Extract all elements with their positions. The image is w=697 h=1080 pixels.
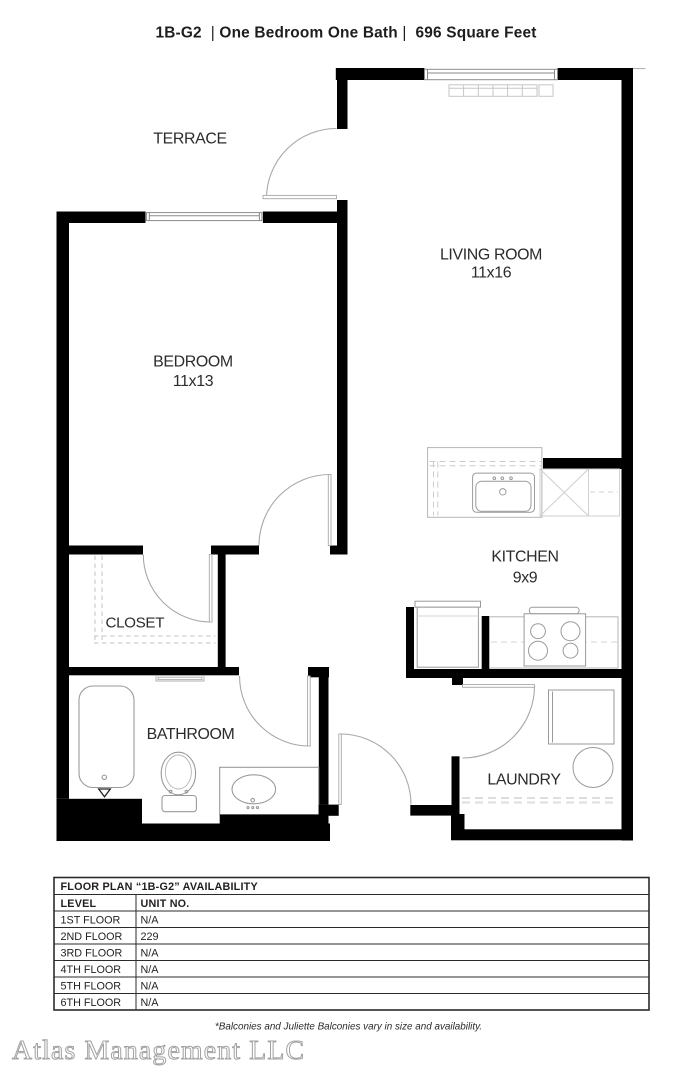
svg-text:2ND FLOOR: 2ND FLOOR [61,931,123,943]
svg-text:5TH FLOOR: 5TH FLOOR [61,980,122,992]
svg-text:KITCHEN: KITCHEN [491,549,558,566]
svg-text:LIVING ROOM: LIVING ROOM [440,247,542,264]
svg-text:CLOSET: CLOSET [105,615,164,632]
svg-text:6TH FLOOR: 6TH FLOOR [61,997,122,1009]
svg-text:FLOOR PLAN “1B-G2” AVAILABILIT: FLOOR PLAN “1B-G2” AVAILABILITY [61,881,259,893]
svg-text:LAUNDRY: LAUNDRY [487,772,561,789]
svg-text:N/A: N/A [141,980,160,992]
svg-text:229: 229 [141,931,159,943]
svg-text:N/A: N/A [141,947,160,959]
svg-text:3RD FLOOR: 3RD FLOOR [61,947,123,959]
svg-text:9x9: 9x9 [513,570,538,587]
svg-text:UNIT NO.: UNIT NO. [141,898,190,910]
svg-text:*Balconies and Juliette Balcon: *Balconies and Juliette Balconies vary i… [215,1022,482,1033]
svg-text:1ST FLOOR: 1ST FLOOR [61,914,121,926]
svg-text:N/A: N/A [141,914,160,926]
svg-text:11x13: 11x13 [173,373,214,390]
svg-text:LEVEL: LEVEL [61,898,97,910]
svg-text:TERRACE: TERRACE [153,131,226,148]
svg-text:Atlas Management LLC: Atlas Management LLC [12,1035,305,1066]
svg-text:4TH FLOOR: 4TH FLOOR [61,964,122,976]
svg-text:1B-G2 | One Bedroom One Bath: 1B-G2 | One Bedroom One Bath | 696 Squar… [155,25,536,42]
svg-text:11x16: 11x16 [471,265,512,282]
svg-text:BEDROOM: BEDROOM [153,354,233,371]
svg-text:BATHROOM: BATHROOM [147,726,235,743]
svg-text:N/A: N/A [141,997,160,1009]
svg-text:N/A: N/A [141,964,160,976]
